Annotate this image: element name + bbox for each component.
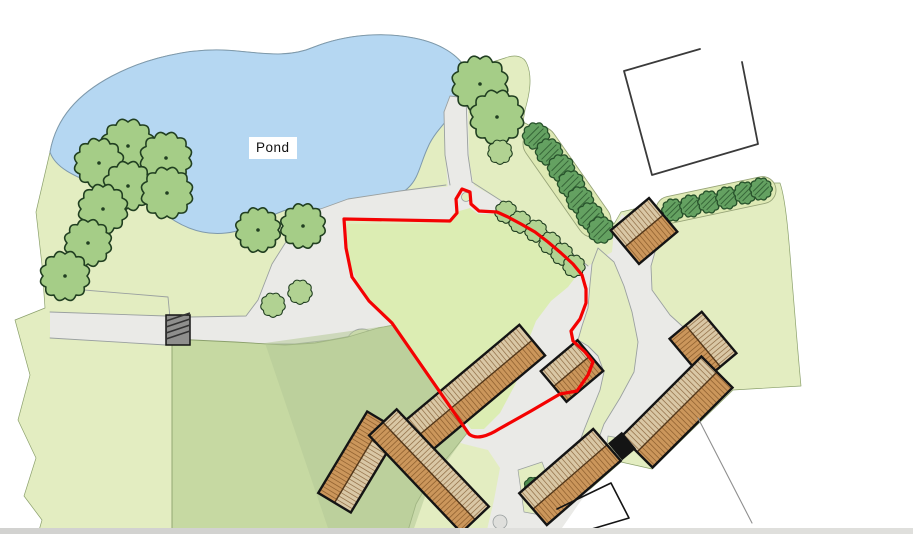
shrub-tree-icon xyxy=(261,293,286,317)
small-circle xyxy=(493,515,507,529)
white-building-outline xyxy=(624,49,758,175)
site-plan-drawing xyxy=(0,0,913,534)
shrub-tree-icon xyxy=(488,140,513,164)
shrub-tree-icon xyxy=(288,280,313,304)
bottom-strip-right xyxy=(460,528,913,534)
pond-label: Pond xyxy=(249,137,297,159)
plot-line xyxy=(698,418,752,523)
site-plan-page: Pond xyxy=(0,0,913,534)
bottom-strip-left xyxy=(0,528,460,534)
gate-hatch xyxy=(166,313,190,345)
